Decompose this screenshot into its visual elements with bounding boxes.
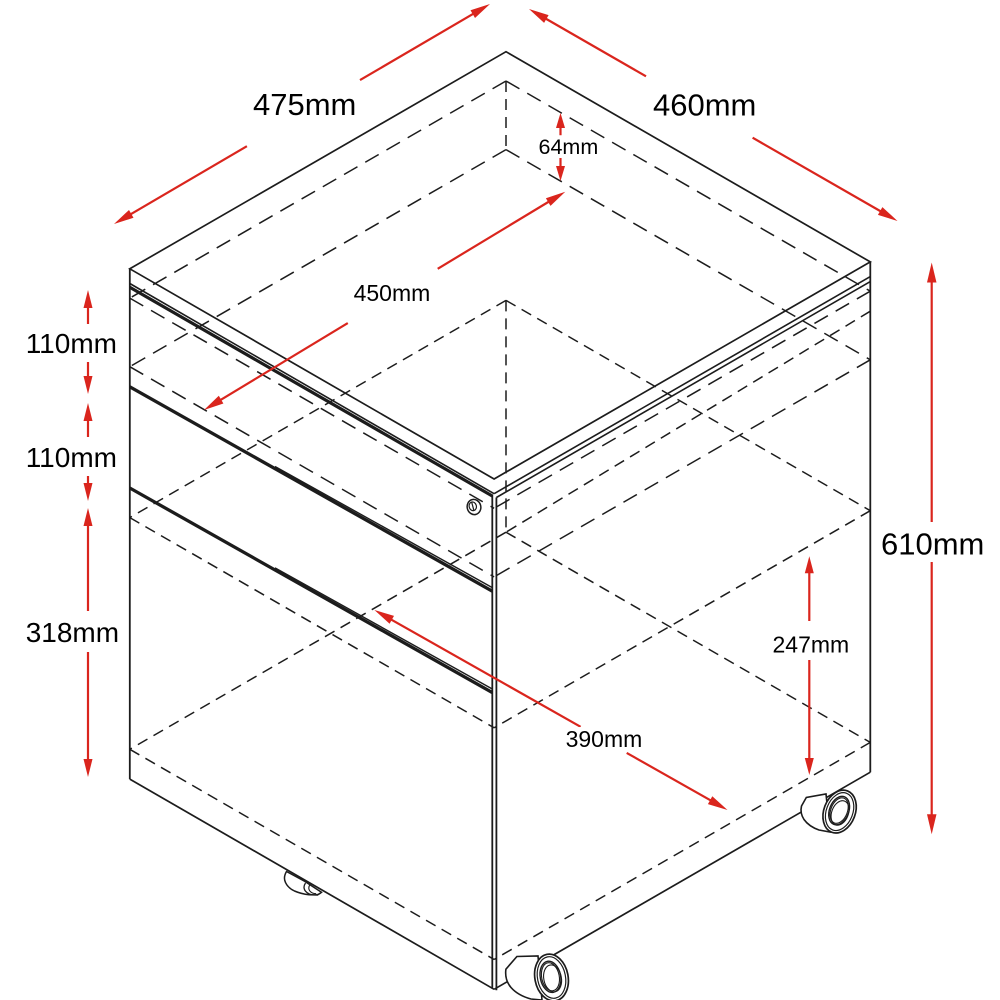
svg-text:390mm: 390mm bbox=[566, 726, 643, 752]
svg-text:460mm: 460mm bbox=[653, 88, 756, 123]
svg-text:64mm: 64mm bbox=[539, 135, 599, 159]
svg-text:318mm: 318mm bbox=[26, 617, 119, 648]
svg-text:610mm: 610mm bbox=[881, 527, 984, 562]
svg-text:110mm: 110mm bbox=[26, 442, 117, 473]
svg-text:450mm: 450mm bbox=[354, 280, 431, 306]
svg-text:110mm: 110mm bbox=[26, 328, 117, 359]
svg-text:247mm: 247mm bbox=[773, 632, 850, 658]
svg-text:475mm: 475mm bbox=[253, 87, 356, 122]
